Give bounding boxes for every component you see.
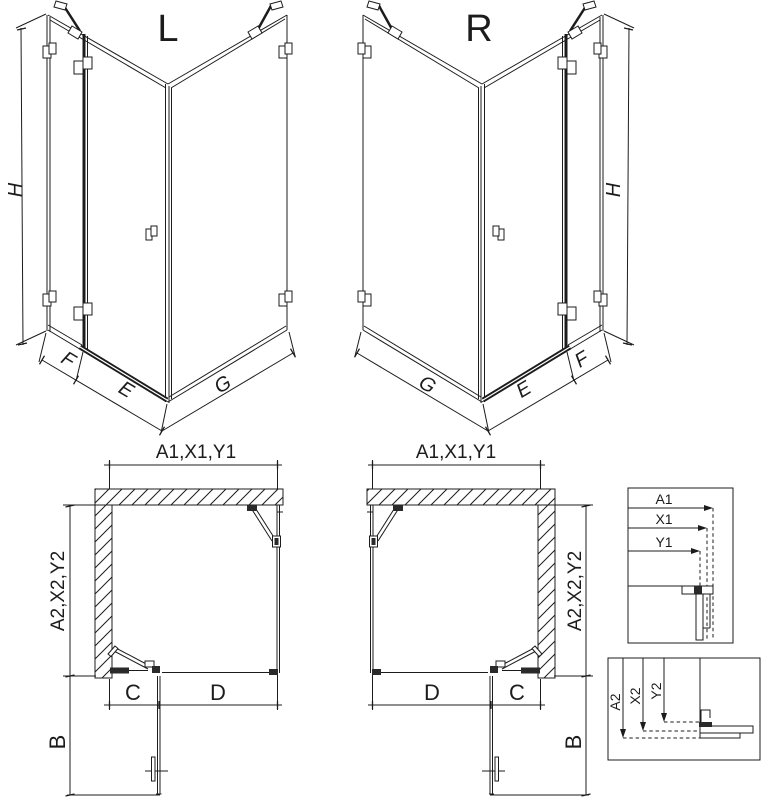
open-door xyxy=(156,676,162,794)
isometric-view-right: H F E G R xyxy=(355,1,635,435)
door-handle xyxy=(152,757,156,781)
door-hinge xyxy=(558,303,567,315)
door-hinge xyxy=(74,307,83,320)
variant-label-right: R xyxy=(465,8,492,50)
corner-profile-detail xyxy=(699,710,753,738)
door-knob xyxy=(493,226,499,236)
detail-box-width-dims: A1 X1 Y1 xyxy=(628,488,733,643)
dimensions-left: H F E G xyxy=(5,14,296,435)
wall-bracket xyxy=(358,43,365,54)
detail-label-a1: A1 xyxy=(655,491,672,507)
door-knob xyxy=(151,226,157,236)
dim-label-open-door-depth: B xyxy=(561,735,586,750)
variant-label-left: L xyxy=(157,8,178,50)
dim-label-side-panel: G xyxy=(415,371,440,398)
dim-label-side-panel: G xyxy=(211,371,236,398)
detail-label-y1: Y1 xyxy=(655,534,672,550)
open-door xyxy=(489,676,494,794)
door-hinge xyxy=(567,61,576,74)
wall-bracket xyxy=(358,291,365,302)
wall-bracket xyxy=(49,43,56,54)
dim-label-height: H xyxy=(5,182,27,197)
wall-top xyxy=(95,489,283,505)
glass-panels xyxy=(108,505,281,794)
detail-label-x1: X1 xyxy=(655,511,672,527)
dim-label-door-width: D xyxy=(210,680,226,705)
wall-profile xyxy=(521,668,540,674)
dim-label-width-chain: A1,X1,Y1 xyxy=(416,442,496,463)
isometric-view-left: H F E G L xyxy=(5,1,296,435)
door-hinge xyxy=(558,57,567,69)
detail-label-y2: Y2 xyxy=(648,682,664,699)
wall-bracket xyxy=(285,43,292,54)
door-hinge xyxy=(567,307,576,320)
dim-label-open-door-depth: B xyxy=(45,735,70,750)
door-handle xyxy=(495,757,499,781)
dim-label-wall-panel: F xyxy=(571,346,594,372)
dim-label-door-width: D xyxy=(424,680,440,705)
wall-profile xyxy=(110,668,129,674)
door-hinge xyxy=(83,303,92,315)
door-hinge xyxy=(74,61,83,74)
wall-bracket xyxy=(594,291,601,302)
glass-panels xyxy=(370,505,543,794)
wall-bracket xyxy=(285,291,292,302)
door-pivot xyxy=(152,666,160,673)
dim-label-depth-chain: A2,X2,Y2 xyxy=(565,551,586,631)
dim-label-width-chain: A1,X1,Y1 xyxy=(156,442,236,463)
detail-label-x2: X2 xyxy=(627,687,643,704)
wall-bracket xyxy=(49,291,56,302)
corner-profile-detail xyxy=(682,586,713,640)
plan-view-left: A1,X1,Y1 A2,X2,Y2 C D B xyxy=(45,442,283,796)
door-pivot xyxy=(490,666,498,673)
detail-box-depth-dims: A2 X2 Y2 xyxy=(607,658,760,760)
dim-label-depth-chain: A2,X2,Y2 xyxy=(48,551,69,631)
wall-top xyxy=(367,489,555,505)
shower-enclosure-technical-drawing: H F E G L xyxy=(0,0,768,800)
dim-label-height: H xyxy=(603,182,625,197)
dim-label-wall-panel: F xyxy=(57,347,80,373)
plan-view-right: A1,X1,Y1 A2,X2,Y2 D C B xyxy=(367,442,593,796)
dim-label-fixed-width: C xyxy=(509,680,525,705)
detail-label-a2: A2 xyxy=(607,693,623,710)
wall-bracket xyxy=(594,43,601,54)
dim-label-fixed-width: C xyxy=(125,680,141,705)
door-hinge xyxy=(83,57,92,69)
